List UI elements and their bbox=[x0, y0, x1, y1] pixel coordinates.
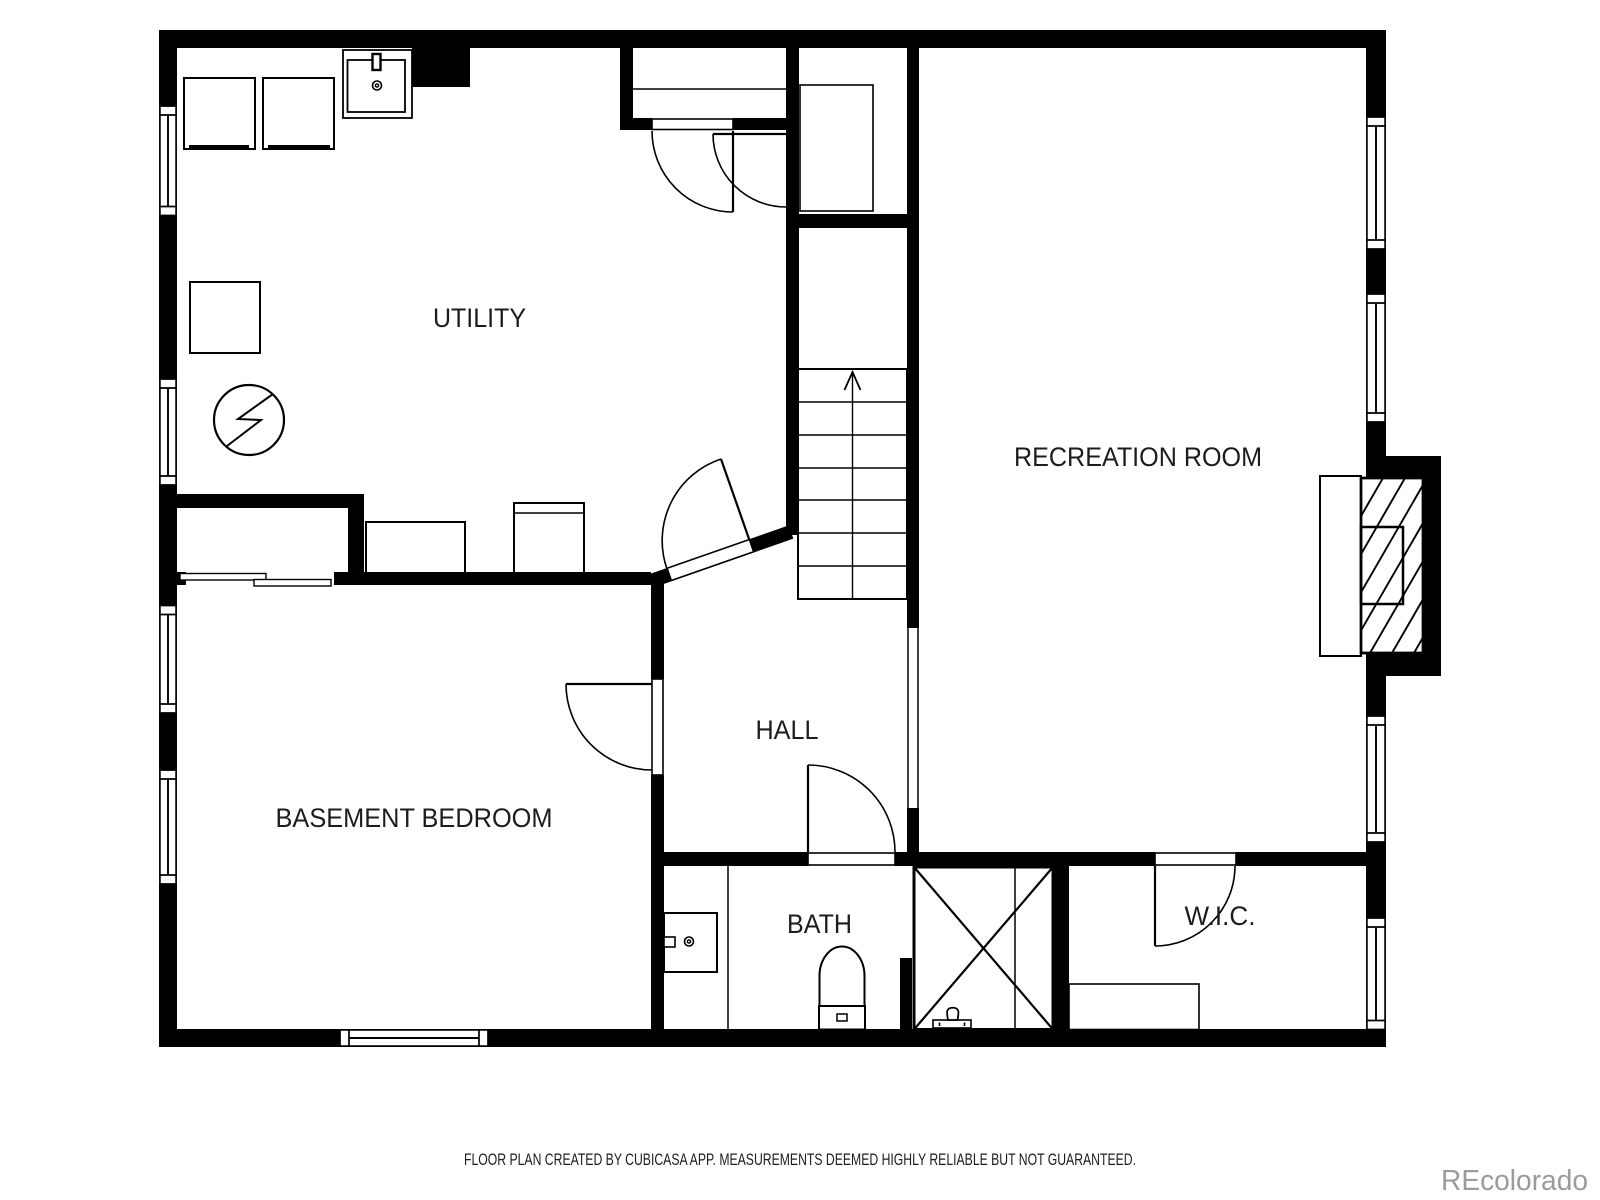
svg-text:REcolorado: REcolorado bbox=[1441, 1165, 1588, 1197]
svg-text:BATH: BATH bbox=[787, 909, 852, 939]
svg-text:BASEMENT BEDROOM: BASEMENT BEDROOM bbox=[276, 803, 553, 833]
svg-text:FLOOR PLAN CREATED BY CUBICASA: FLOOR PLAN CREATED BY CUBICASA APP. MEAS… bbox=[464, 1150, 1136, 1169]
svg-text:W.I.C.: W.I.C. bbox=[1185, 901, 1256, 931]
svg-text:RECREATION ROOM: RECREATION ROOM bbox=[1014, 442, 1262, 472]
svg-text:UTILITY: UTILITY bbox=[433, 303, 526, 333]
svg-text:HALL: HALL bbox=[756, 715, 819, 745]
